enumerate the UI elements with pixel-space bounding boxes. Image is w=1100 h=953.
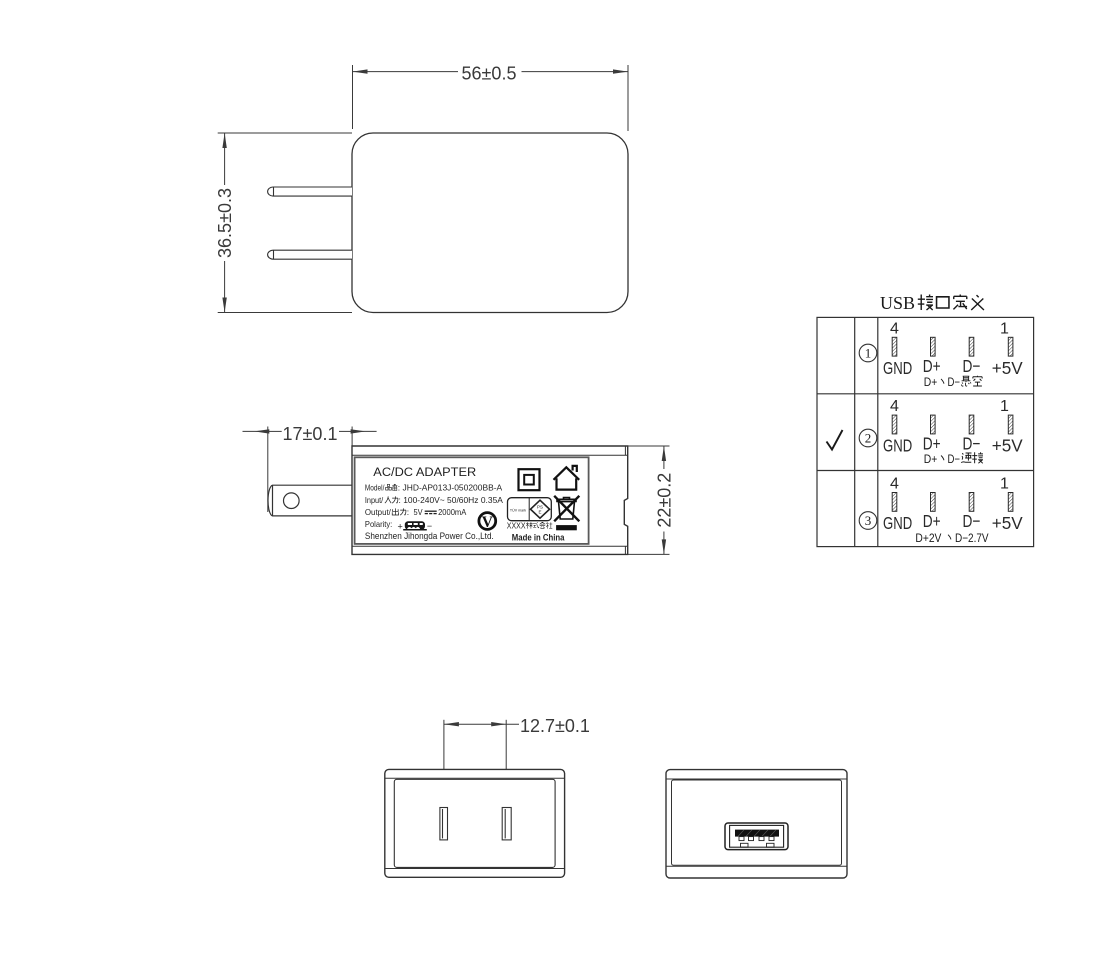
svg-text:Model/: Model/ — [365, 482, 385, 492]
svg-text:D−2.7V: D−2.7V — [955, 531, 989, 545]
svg-text:D−: D− — [948, 452, 961, 466]
svg-text:USB: USB — [880, 293, 915, 313]
svg-text:12.7±0.1: 12.7±0.1 — [520, 716, 590, 736]
svg-text:D−: D− — [948, 375, 961, 389]
svg-text:E: E — [538, 510, 541, 515]
svg-text:V: V — [482, 514, 494, 531]
svg-text:2: 2 — [865, 431, 872, 446]
svg-text:5V: 5V — [414, 507, 423, 517]
svg-text:: JHD-AP013J-050200BB-A: : JHD-AP013J-050200BB-A — [398, 482, 503, 492]
svg-text::: : — [407, 507, 409, 517]
svg-text:2000mA: 2000mA — [438, 507, 466, 517]
svg-text:Polarity:: Polarity: — [365, 519, 392, 529]
svg-text:+: + — [398, 521, 403, 531]
svg-text:56±0.5: 56±0.5 — [462, 63, 517, 83]
svg-text:3: 3 — [865, 513, 872, 528]
svg-text:1: 1 — [865, 346, 872, 361]
svg-text:D+: D+ — [924, 375, 938, 389]
svg-text:Input/: Input/ — [365, 495, 384, 505]
svg-text:22±0.2: 22±0.2 — [655, 473, 675, 528]
svg-text:17±0.1: 17±0.1 — [283, 424, 338, 444]
svg-text:XXXX: XXXX — [507, 522, 526, 531]
svg-text:36.5±0.3: 36.5±0.3 — [215, 188, 235, 258]
svg-text:TÜV mark: TÜV mark — [510, 509, 526, 513]
svg-text:Shenzhen Jihongda Power Co.,Lt: Shenzhen Jihongda Power Co.,Ltd. — [365, 531, 494, 541]
svg-text:: 100-240V~ 50/60Hz 0.35A: : 100-240V~ 50/60Hz 0.35A — [399, 495, 504, 505]
svg-text:AC/DC ADAPTER: AC/DC ADAPTER — [373, 465, 476, 479]
svg-text:Made in China: Made in China — [512, 532, 565, 542]
svg-text:−: − — [427, 521, 432, 531]
svg-text:Output/: Output/ — [365, 507, 392, 517]
svg-text:D+: D+ — [924, 452, 938, 466]
svg-text:D+2V: D+2V — [915, 531, 941, 545]
